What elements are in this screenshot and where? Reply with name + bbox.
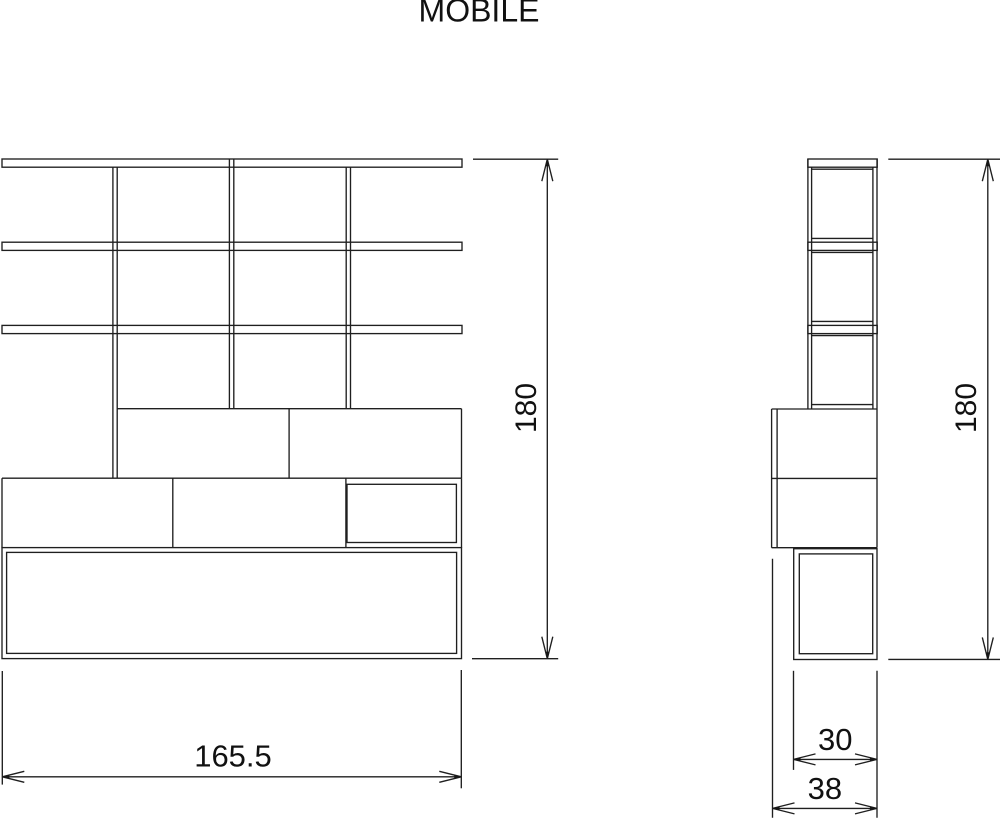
svg-text:30: 30 — [818, 722, 852, 757]
svg-text:180: 180 — [950, 383, 983, 433]
svg-text:MOBILE: MOBILE — [419, 0, 540, 29]
svg-text:180: 180 — [510, 383, 543, 433]
svg-text:38: 38 — [808, 771, 842, 806]
svg-text:165.5: 165.5 — [194, 738, 272, 773]
